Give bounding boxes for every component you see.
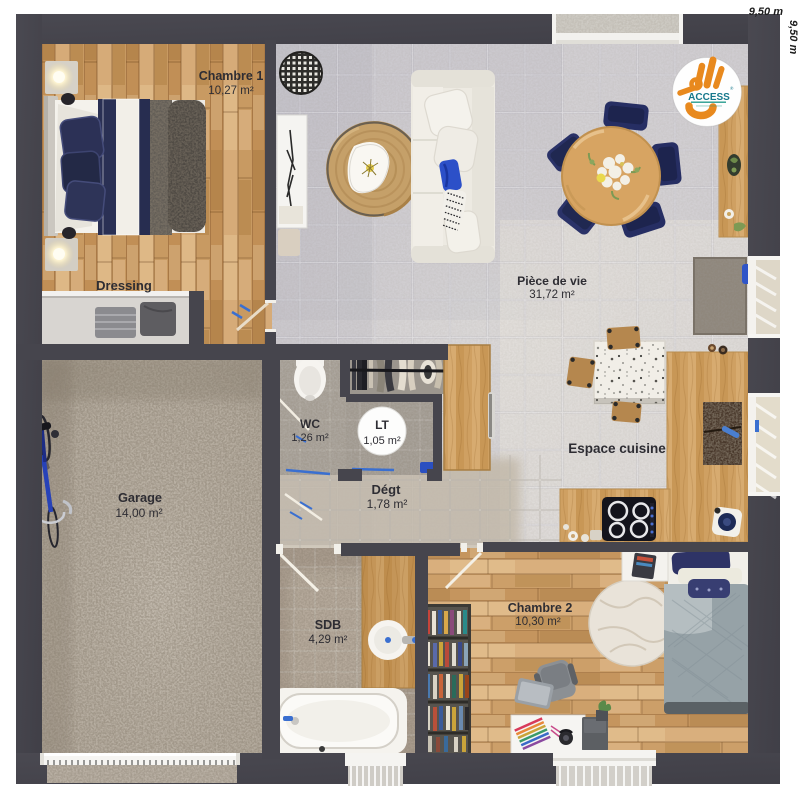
svg-text:Garage: Garage [118, 490, 162, 505]
svg-text:Dégt: Dégt [372, 482, 402, 497]
svg-text:31,72 m²: 31,72 m² [529, 289, 575, 301]
svg-text:10,27 m²: 10,27 m² [208, 85, 254, 97]
svg-text:SDB: SDB [315, 618, 341, 632]
svg-text:14,00 m²: 14,00 m² [115, 506, 162, 520]
svg-text:1,78 m²: 1,78 m² [367, 497, 408, 511]
svg-text:ACCESS: ACCESS [688, 92, 730, 103]
svg-text:Chambre 2: Chambre 2 [508, 601, 573, 615]
svg-text:4,29 m²: 4,29 m² [309, 634, 348, 646]
svg-text:1,26 m²: 1,26 m² [291, 432, 329, 444]
svg-text:Espace cuisine: Espace cuisine [568, 441, 666, 456]
svg-text:1,05 m²: 1,05 m² [363, 435, 401, 447]
svg-text:LT: LT [375, 418, 389, 432]
svg-text:WC: WC [300, 417, 320, 431]
svg-text:Chambre 1: Chambre 1 [199, 69, 264, 83]
svg-text:10,30 m²: 10,30 m² [515, 616, 561, 628]
svg-text:Pièce de vie: Pièce de vie [517, 274, 587, 288]
svg-text:Dressing: Dressing [96, 278, 152, 293]
svg-text:9,50 m: 9,50 m [749, 6, 783, 18]
svg-text:9,50 m: 9,50 m [787, 20, 799, 54]
